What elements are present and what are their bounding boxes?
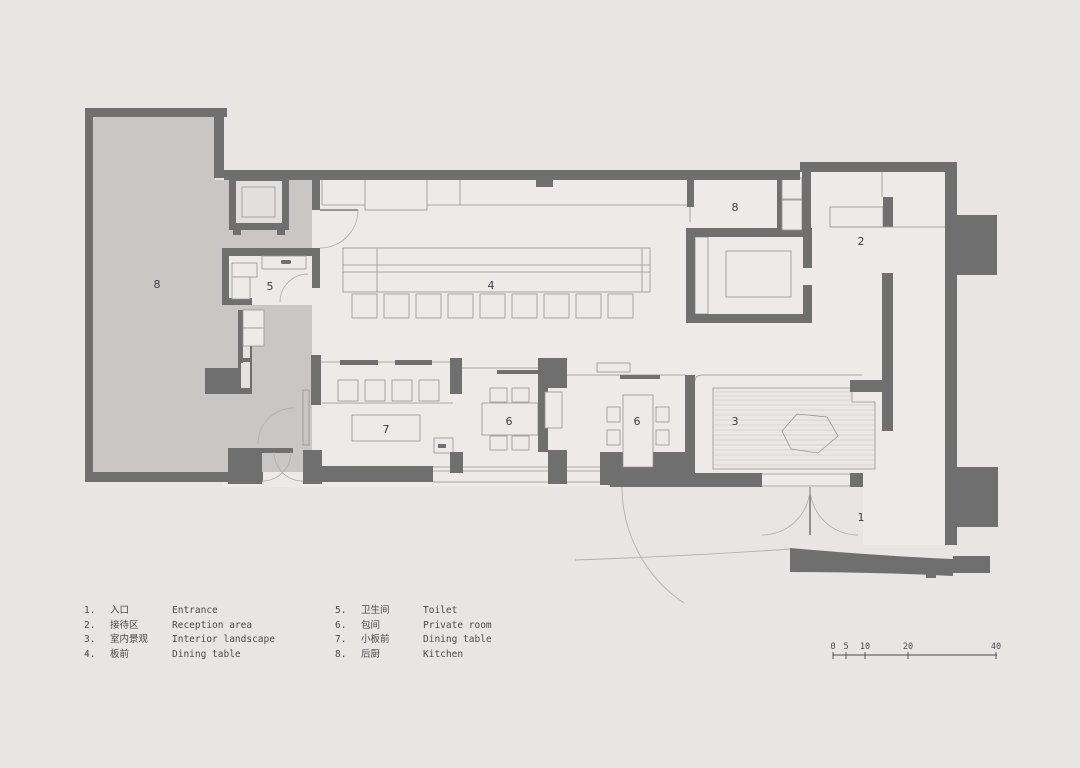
kitchen-equipment-block <box>205 368 238 394</box>
tatami-table <box>726 251 791 297</box>
dining-table-2 <box>623 395 653 467</box>
utility-cabinet <box>243 310 264 328</box>
faucet-icon <box>281 260 291 264</box>
legend-zh: 后厨 <box>361 648 423 663</box>
legend-en: Dining table <box>172 648 241 663</box>
entrance-swing-arcs <box>575 487 790 603</box>
legend-column-1: 1. 入口 Entrance 2. 接待区 Reception area 3. … <box>84 604 275 662</box>
label-private-room-1: 6 <box>506 415 513 428</box>
legend-zh: 室内景观 <box>110 633 172 648</box>
legend-en: Kitchen <box>423 648 463 663</box>
label-kitchen-top: 8 <box>732 201 739 214</box>
scale-label-10: 10 <box>860 642 870 652</box>
floor-plan-page: { "title": "restaurant floor plan", "col… <box>0 0 1080 764</box>
legend-number: 8. <box>335 648 361 663</box>
legend-en: Private room <box>423 619 492 634</box>
legend-en: Entrance <box>172 604 218 619</box>
label-kitchen-left: 8 <box>154 278 161 291</box>
legend-number: 3. <box>84 633 110 648</box>
label-entrance: 1 <box>858 511 865 524</box>
legend-zh: 包间 <box>361 619 423 634</box>
reception-wall-stub <box>882 273 893 431</box>
shaft-room <box>229 174 289 235</box>
legend-item: 6. 包间 Private room <box>335 619 492 634</box>
label-private-room-2: 6 <box>634 415 641 428</box>
label-reception: 2 <box>858 235 865 248</box>
legend-number: 5. <box>335 604 361 619</box>
scale-label-0: 0 <box>830 642 835 652</box>
scale-label-5: 5 <box>843 642 848 652</box>
legend-en: Reception area <box>172 619 252 634</box>
tatami-room <box>686 228 812 323</box>
label-toilet: 5 <box>267 280 274 293</box>
scale-bar: 0 5 10 20 40 <box>820 638 1005 666</box>
scale-label-40: 40 <box>991 642 1001 652</box>
label-dining-counter: 4 <box>488 279 495 292</box>
toilet-fixture <box>232 263 257 277</box>
legend-number: 2. <box>84 619 110 634</box>
counter-stools <box>352 294 633 318</box>
scale-label-20: 20 <box>903 642 913 652</box>
legend-number: 1. <box>84 604 110 619</box>
reception-shelf <box>830 207 883 227</box>
toilet-wall-top <box>222 248 320 256</box>
legend-zh: 接待区 <box>110 619 172 634</box>
legend-number: 4. <box>84 648 110 663</box>
back-counter-block <box>365 178 427 210</box>
interior-landscape <box>695 375 875 469</box>
legend-column-2: 5. 卫生间 Toilet 6. 包间 Private room 7. 小板前 … <box>335 604 492 662</box>
legend-en: Interior landscape <box>172 633 275 648</box>
legend-item: 1. 入口 Entrance <box>84 604 275 619</box>
legend-item: 8. 后厨 Kitchen <box>335 648 492 663</box>
legend-item: 5. 卫生间 Toilet <box>335 604 492 619</box>
legend-zh: 入口 <box>110 604 172 619</box>
label-small-counter: 7 <box>383 423 390 436</box>
legend-item: 2. 接待区 Reception area <box>84 619 275 634</box>
legend-zh: 板前 <box>110 648 172 663</box>
legend-number: 7. <box>335 633 361 648</box>
scale-bar-graphic: 0 5 10 20 40 <box>820 638 1005 662</box>
legend-item: 7. 小板前 Dining table <box>335 633 492 648</box>
legend-number: 6. <box>335 619 361 634</box>
legend-item: 4. 板前 Dining table <box>84 648 275 663</box>
legend-zh: 小板前 <box>361 633 423 648</box>
legend-item: 3. 室内景观 Interior landscape <box>84 633 275 648</box>
legend-zh: 卫生间 <box>361 604 423 619</box>
legend-en: Toilet <box>423 604 457 619</box>
legend-en: Dining table <box>423 633 492 648</box>
label-interior-landscape: 3 <box>732 415 739 428</box>
